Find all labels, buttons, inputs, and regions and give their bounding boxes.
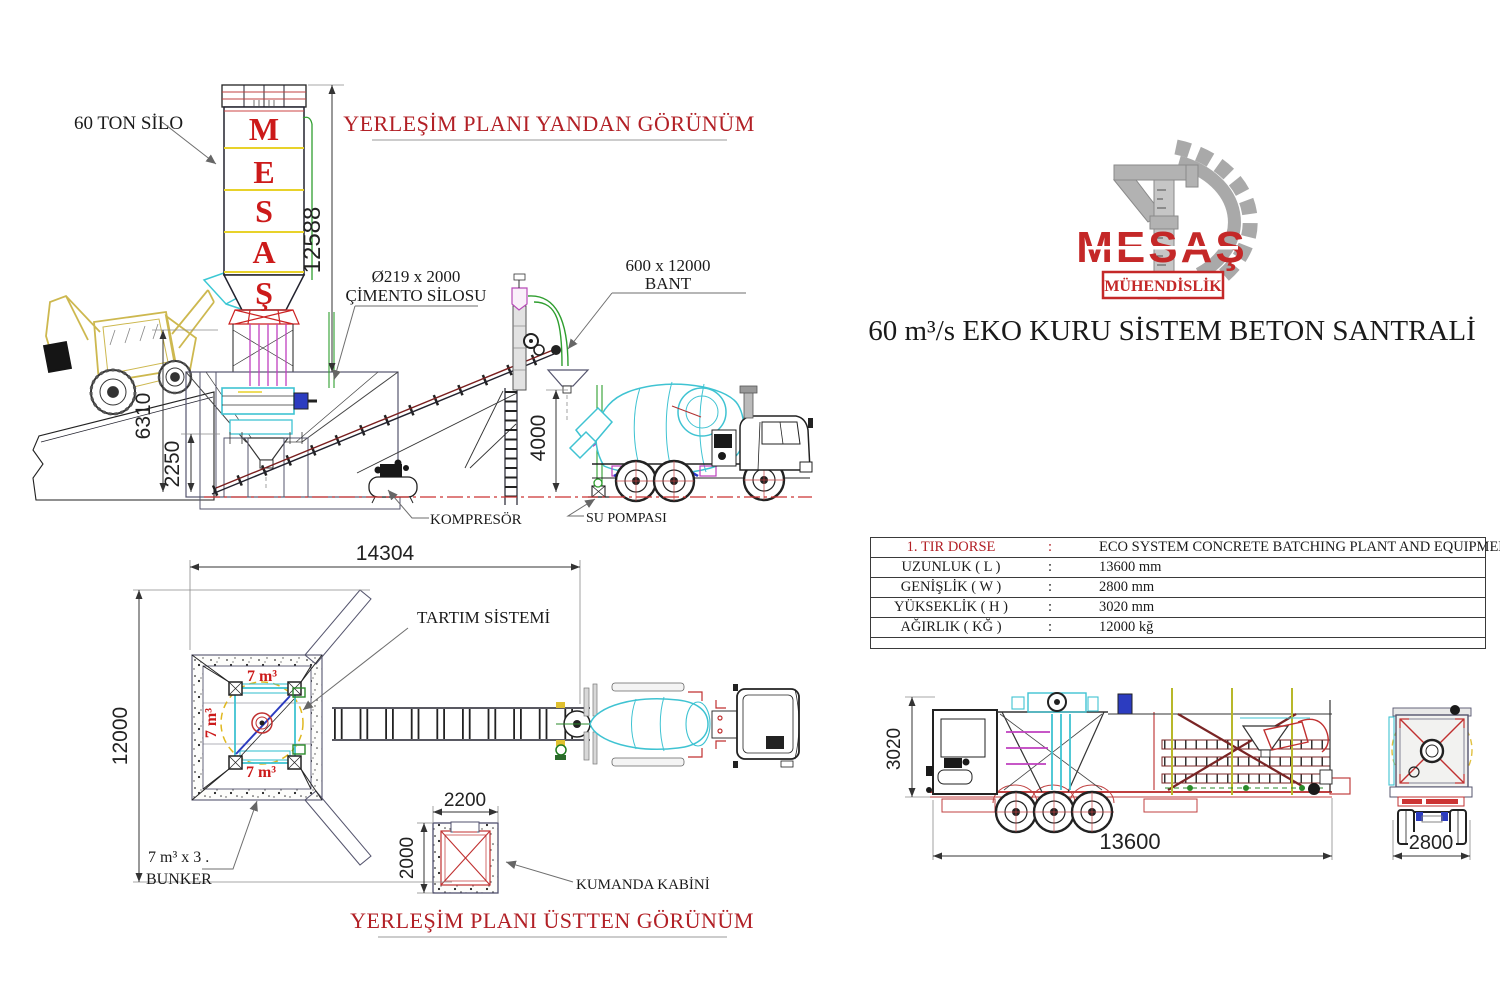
silo-letter-e: E bbox=[253, 154, 274, 190]
aggregate-bin-side bbox=[997, 693, 1154, 792]
main-title: 60 m³/s EKO KURU SİSTEM BETON SANTRALİ bbox=[868, 315, 1476, 347]
bunker: 7 m³ 7 m³ 7 m³ bbox=[192, 590, 371, 865]
dim-total-width: 12000 bbox=[109, 707, 132, 765]
silo-letter-a: A bbox=[252, 234, 275, 270]
drawing-sheet: M E S A Ş bbox=[0, 0, 1500, 1000]
spec-value: ECO SYSTEM CONCRETE BATCHING PLANT AND E… bbox=[1069, 538, 1500, 557]
top-view-dimensions: 14304 12000 2200 2000 bbox=[109, 542, 580, 893]
cement-silo-label-2: ÇİMENTO SİLOSU bbox=[346, 286, 487, 305]
dim-cabin-depth: 2000 bbox=[397, 837, 418, 879]
spec-row-uzunluk: UZUNLUK ( L ) : 13600 mm bbox=[871, 558, 1485, 578]
spec-value: 2800 mm bbox=[1069, 578, 1485, 597]
dim-platform-height: 6310 bbox=[132, 393, 155, 440]
spec-table: 1. TIR DORSE : ECO SYSTEM CONCRETE BATCH… bbox=[870, 537, 1486, 649]
spec-label: 1. TIR DORSE bbox=[871, 538, 1031, 557]
spec-row-agirlik: AĞIRLIK ( KĞ ) : 12000 kğ bbox=[871, 618, 1485, 638]
silo-letter-s: S bbox=[255, 193, 273, 229]
weighing-label: TARTIM SİSTEMİ bbox=[417, 608, 550, 627]
spec-colon: : bbox=[1031, 618, 1069, 637]
spec-label: YÜKSEKLİK ( H ) bbox=[871, 598, 1031, 617]
truck-cab bbox=[740, 386, 813, 472]
access-ladder bbox=[505, 388, 517, 505]
silo-letter-m: M bbox=[249, 111, 279, 147]
silo-flange bbox=[229, 310, 299, 324]
side-view-plan: M E S A Ş bbox=[33, 85, 813, 528]
trailer-rear-view: 2800 bbox=[1389, 705, 1472, 860]
bunker-cell-bottom: 7 m³ bbox=[246, 764, 276, 781]
bunker-cell-left: 7 m³ bbox=[203, 708, 220, 738]
dim-discharge-height: 4000 bbox=[527, 415, 550, 462]
water-pump bbox=[588, 479, 610, 497]
silo-label: 60 TON SİLO bbox=[74, 113, 183, 134]
cement-silo-label-1: Ø219 x 2000 bbox=[372, 267, 461, 286]
belt-label-1: 600 x 12000 bbox=[626, 256, 711, 275]
top-view-plan: 7 m³ 7 m³ 7 m³ bbox=[109, 542, 799, 937]
dim-pit-depth: 2250 bbox=[161, 441, 184, 488]
bunker-label-2: BUNKER bbox=[146, 871, 212, 888]
trailer-side-view: 3020 13600 bbox=[884, 688, 1350, 860]
spec-colon: : bbox=[1031, 558, 1069, 577]
drawing-canvas: M E S A Ş bbox=[0, 0, 1500, 1000]
dim-total-length: 14304 bbox=[356, 542, 415, 565]
side-view-title: YERLEŞİM PLANI YANDAN GÖRÜNÜM bbox=[343, 111, 755, 136]
spec-colon: : bbox=[1031, 598, 1069, 617]
spec-value: 3020 mm bbox=[1069, 598, 1485, 617]
mixer-truck-top bbox=[584, 683, 799, 768]
spec-colon: : bbox=[1031, 578, 1069, 597]
dim-trailer-height: 3020 bbox=[884, 728, 905, 770]
spec-row-tir-dorse: 1. TIR DORSE : ECO SYSTEM CONCRETE BATCH… bbox=[871, 538, 1485, 558]
logo-subtitle: MÜHENDİSLİK bbox=[1104, 276, 1222, 295]
compressor-label: KOMPRESÖR bbox=[430, 511, 522, 528]
dim-silo-height: 12588 bbox=[299, 207, 326, 274]
weigh-pads bbox=[229, 682, 301, 769]
folded-conveyors bbox=[1108, 688, 1332, 795]
spec-row-genislik: GENİŞLİK ( W ) : 2800 mm bbox=[871, 578, 1485, 598]
water-pump-label: SU POMPASI bbox=[586, 511, 667, 526]
spec-label: GENİŞLİK ( W ) bbox=[871, 578, 1031, 597]
bunker-cell-top: 7 m³ bbox=[247, 668, 277, 685]
dim-trailer-width: 2800 bbox=[1409, 832, 1454, 854]
dim-cabin-width: 2200 bbox=[444, 790, 486, 811]
generator-compartment bbox=[926, 710, 997, 794]
spec-value: 13600 mm bbox=[1069, 558, 1485, 577]
spec-table-tail bbox=[871, 638, 1485, 648]
spec-colon: : bbox=[1031, 538, 1069, 557]
spec-value: 12000 kğ bbox=[1069, 618, 1485, 637]
bunker-label-1: 7 m³ x 3 . bbox=[148, 849, 209, 866]
spec-label: UZUNLUK ( L ) bbox=[871, 558, 1031, 577]
truck-cab-top bbox=[733, 684, 799, 768]
dim-trailer-length: 13600 bbox=[1099, 829, 1160, 854]
control-cabin-label: KUMANDA KABİNİ bbox=[576, 877, 710, 893]
spec-label: AĞIRLIK ( KĞ ) bbox=[871, 618, 1031, 637]
spec-row-yukseklik: YÜKSEKLİK ( H ) : 3020 mm bbox=[871, 598, 1485, 618]
weigh-belt bbox=[222, 388, 317, 414]
silo-letter-s2: Ş bbox=[255, 275, 273, 311]
conveyor-top bbox=[332, 702, 620, 760]
top-view-title: YERLEŞİM PLANI ÜSTTEN GÖRÜNÜM bbox=[350, 908, 754, 933]
silo-legs bbox=[233, 324, 293, 372]
brand-block: MESAŞ MÜHENDİSLİK 60 m³/s EKO KURU SİSTE… bbox=[868, 147, 1476, 347]
belt-label-2: BANT bbox=[645, 274, 692, 293]
